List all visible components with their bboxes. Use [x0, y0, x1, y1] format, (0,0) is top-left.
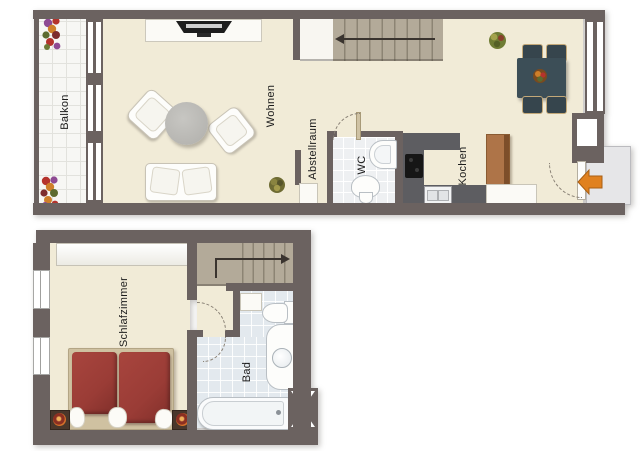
toilet-icon [262, 303, 288, 323]
window [33, 270, 50, 309]
hall-bottom-wall [197, 330, 203, 337]
lamp-icon [53, 413, 66, 426]
wardrobe [56, 243, 190, 266]
tub-faucet-icon [276, 410, 281, 415]
outer-wall-right [293, 230, 311, 430]
stair-direction-line [215, 258, 217, 278]
sink-basin-icon [272, 348, 292, 368]
floorplan-image: Balkon Wohnen Abstellraum WC Kochen [0, 0, 640, 451]
bath-wall-left [233, 290, 240, 337]
bedroom-wall [187, 330, 197, 430]
bathtub-icon [197, 397, 291, 430]
stair-arrow-icon [281, 254, 290, 264]
nightstand [50, 410, 70, 430]
room-label-schlafzimmer: Schlafzimmer [118, 277, 130, 347]
outer-wall-top [36, 230, 311, 243]
bath-shelf [240, 293, 262, 311]
room-label-bad: Bad [241, 362, 253, 382]
lower-floor-plan: Schlafzimmer Bad [0, 0, 640, 451]
bedroom-wall [187, 243, 197, 300]
outer-wall-bottom [33, 430, 318, 445]
window [33, 337, 50, 375]
pillow [108, 407, 127, 428]
stairs-lower [233, 243, 295, 286]
duvet [72, 352, 117, 414]
stair-direction-line [215, 258, 283, 260]
vanity-sink [266, 324, 295, 390]
